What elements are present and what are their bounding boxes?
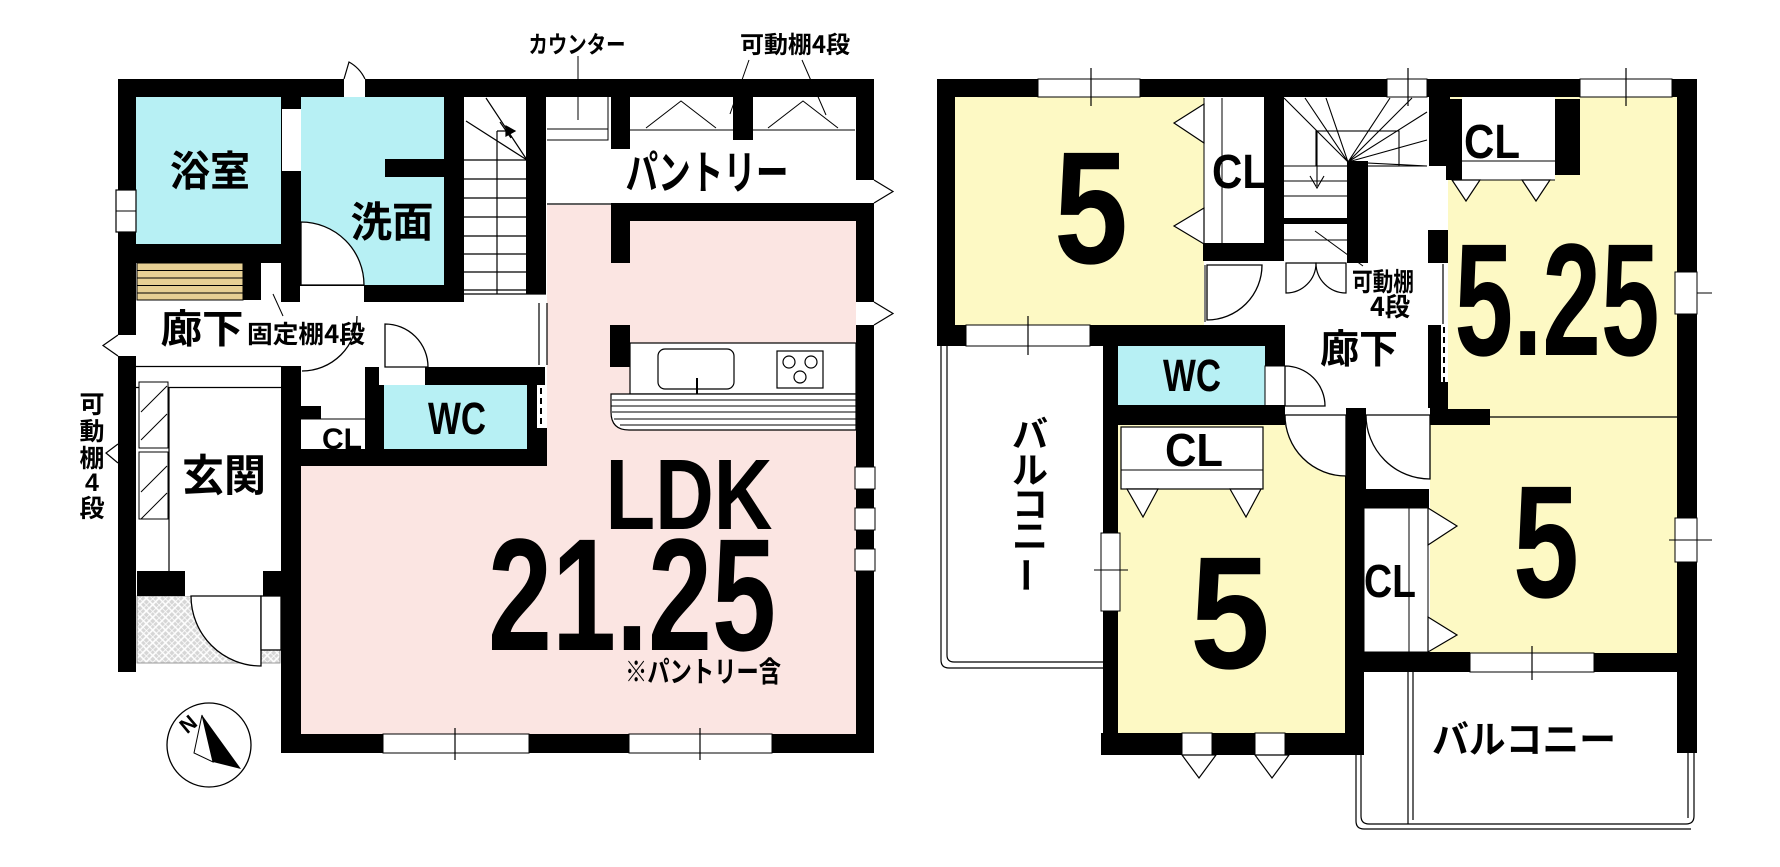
svg-text:5: 5 [1054,118,1128,297]
svg-text:CL: CL [1212,146,1268,199]
svg-text:5.25: 5.25 [1455,210,1660,389]
svg-text:5: 5 [1190,523,1270,702]
svg-text:WC: WC [1163,350,1221,401]
svg-text:CL: CL [1364,555,1416,607]
svg-text:CL: CL [322,423,362,456]
svg-text:4: 4 [85,469,99,497]
svg-text:CL: CL [1464,116,1520,169]
svg-text:5: 5 [1513,452,1579,631]
svg-text:CL: CL [1165,424,1223,476]
svg-text:WC: WC [428,393,486,444]
svg-text:21.25: 21.25 [488,505,776,684]
